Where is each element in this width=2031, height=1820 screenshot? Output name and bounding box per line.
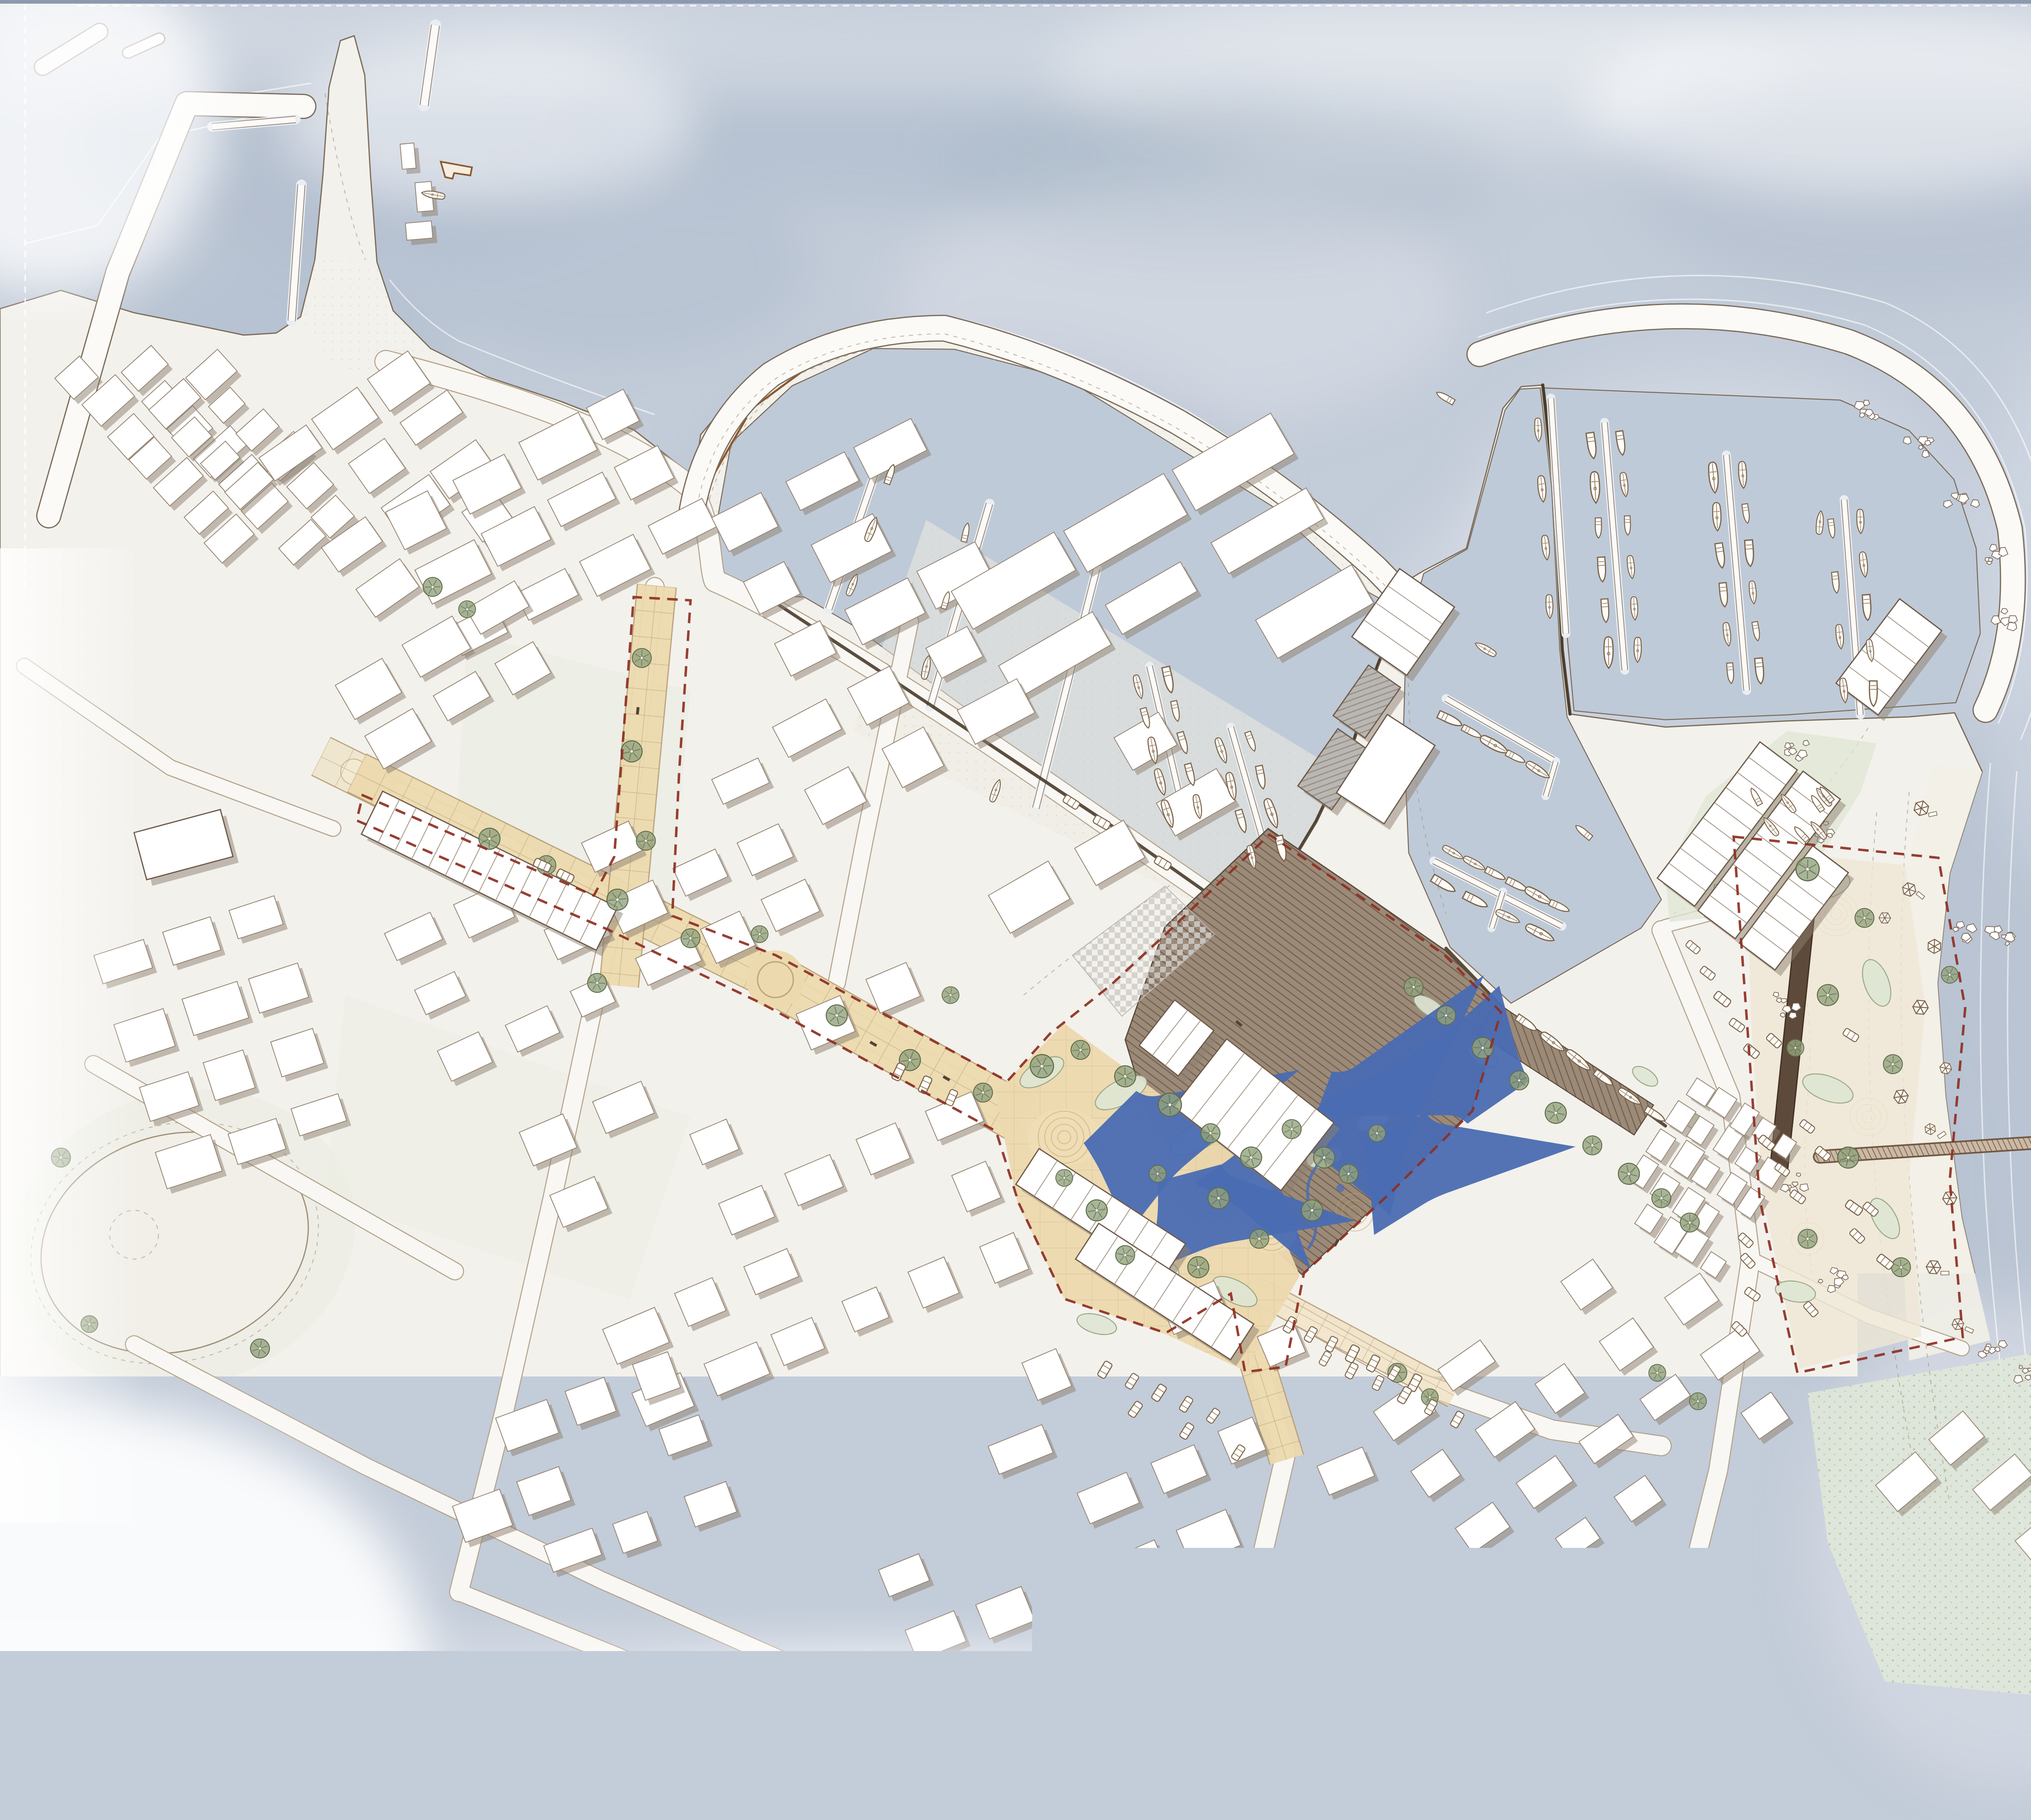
- site-plan-stage: [0, 0, 2031, 1820]
- masterplan-drawing: [0, 0, 2031, 1820]
